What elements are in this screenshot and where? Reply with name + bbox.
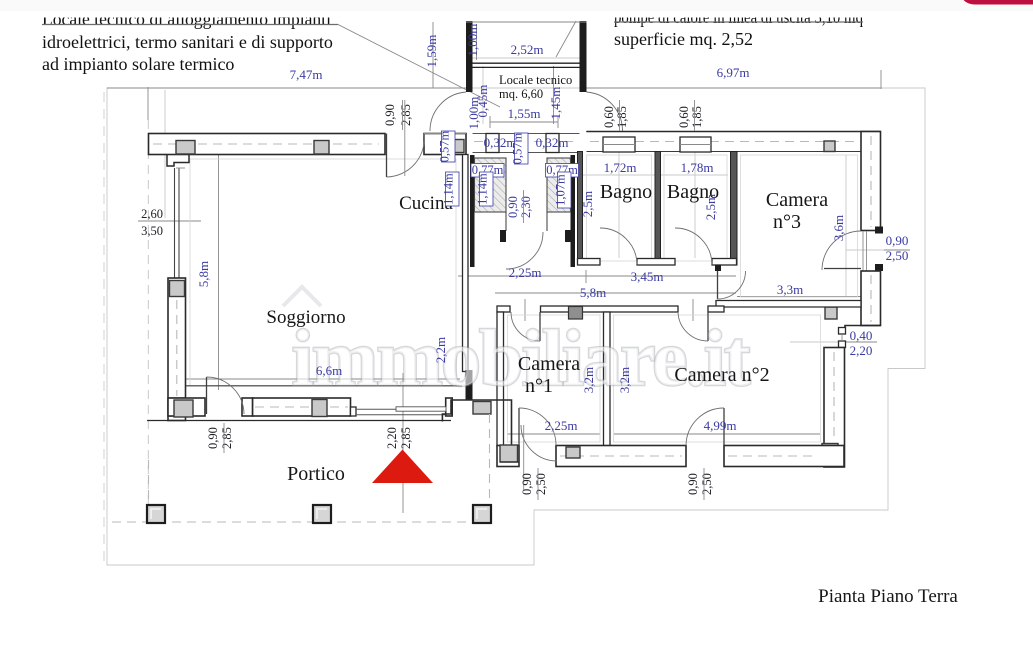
svg-text:n°3: n°3 [773, 211, 801, 233]
svg-text:0,90: 0,90 [506, 196, 520, 218]
svg-text:2,5m: 2,5m [580, 191, 595, 217]
svg-text:0,90: 0,90 [206, 427, 220, 449]
svg-text:0,90: 0,90 [686, 473, 700, 495]
svg-text:2,60: 2,60 [141, 207, 163, 221]
svg-text:0,90: 0,90 [383, 104, 397, 126]
svg-text:3,3m: 3,3m [777, 282, 803, 297]
svg-text:Pianta Piano Terra: Pianta Piano Terra [818, 586, 958, 607]
svg-text:superficie mq. 2,52: superficie mq. 2,52 [614, 29, 753, 49]
svg-text:n°1: n°1 [525, 375, 553, 397]
svg-text:idroelettrici, termo sanitari: idroelettrici, termo sanitari e di suppo… [42, 32, 333, 52]
svg-text:3,2m: 3,2m [617, 367, 632, 393]
svg-text:0,40: 0,40 [850, 328, 873, 343]
svg-text:2,20: 2,20 [385, 427, 399, 449]
svg-text:Camera: Camera [518, 353, 580, 375]
svg-text:2,85: 2,85 [399, 427, 413, 449]
svg-text:5,8m: 5,8m [580, 285, 606, 300]
svg-text:2,50: 2,50 [886, 248, 909, 263]
svg-text:0,57m: 0,57m [438, 130, 452, 162]
svg-text:2,20: 2,20 [850, 343, 873, 358]
svg-text:6,97m: 6,97m [717, 65, 750, 80]
svg-text:Portico: Portico [287, 463, 345, 485]
svg-text:1,14m: 1,14m [442, 173, 456, 205]
svg-text:0,90: 0,90 [520, 473, 534, 495]
svg-text:3,50: 3,50 [141, 224, 163, 238]
svg-text:2,50: 2,50 [534, 473, 548, 495]
svg-text:2,85: 2,85 [399, 104, 413, 126]
svg-text:2,52m: 2,52m [511, 42, 544, 57]
svg-text:1,59m: 1,59m [424, 35, 439, 68]
svg-text:2,50: 2,50 [700, 473, 714, 495]
svg-text:1,14m: 1,14m [476, 173, 490, 205]
svg-text:7,47m: 7,47m [290, 67, 323, 82]
svg-text:Camera n°2: Camera n°2 [674, 364, 769, 386]
svg-text:0,60: 0,60 [677, 106, 691, 128]
svg-text:0,90: 0,90 [886, 233, 909, 248]
svg-text:1,72m: 1,72m [604, 160, 637, 175]
svg-text:2,85: 2,85 [220, 427, 234, 449]
svg-text:1,85: 1,85 [615, 106, 629, 128]
svg-text:0,32m: 0,32m [536, 135, 569, 150]
svg-text:1,78m: 1,78m [681, 160, 714, 175]
svg-text:Soggiorno: Soggiorno [266, 307, 345, 328]
svg-text:mq. 6,60: mq. 6,60 [499, 87, 543, 101]
svg-text:Bagno: Bagno [600, 181, 652, 203]
svg-text:ad impianto solare termico: ad impianto solare termico [42, 54, 234, 74]
svg-text:6,6m: 6,6m [316, 363, 342, 378]
svg-text:1,85: 1,85 [690, 106, 704, 128]
svg-text:3,2m: 3,2m [581, 367, 596, 393]
svg-text:2,25m: 2,25m [545, 418, 578, 433]
svg-text:1,00m: 1,00m [466, 97, 481, 130]
svg-text:1,07m: 1,07m [554, 174, 568, 206]
svg-text:2,30: 2,30 [519, 196, 533, 218]
svg-text:0,60: 0,60 [602, 106, 616, 128]
svg-text:5,8m: 5,8m [196, 261, 211, 287]
svg-text:2,2m: 2,2m [433, 337, 448, 363]
svg-text:2,25m: 2,25m [509, 265, 542, 280]
svg-text:2,5m: 2,5m [703, 194, 718, 220]
svg-text:1,45m: 1,45m [548, 87, 563, 120]
svg-text:Locale tecnico: Locale tecnico [499, 73, 572, 87]
svg-text:3,6m: 3,6m [831, 215, 846, 241]
svg-text:4,99m: 4,99m [704, 418, 737, 433]
svg-text:3,45m: 3,45m [631, 269, 664, 284]
svg-text:Camera: Camera [766, 189, 828, 211]
svg-text:0,57m: 0,57m [511, 132, 525, 164]
svg-text:1,00m: 1,00m [465, 24, 480, 57]
svg-text:1,55m: 1,55m [508, 106, 541, 121]
